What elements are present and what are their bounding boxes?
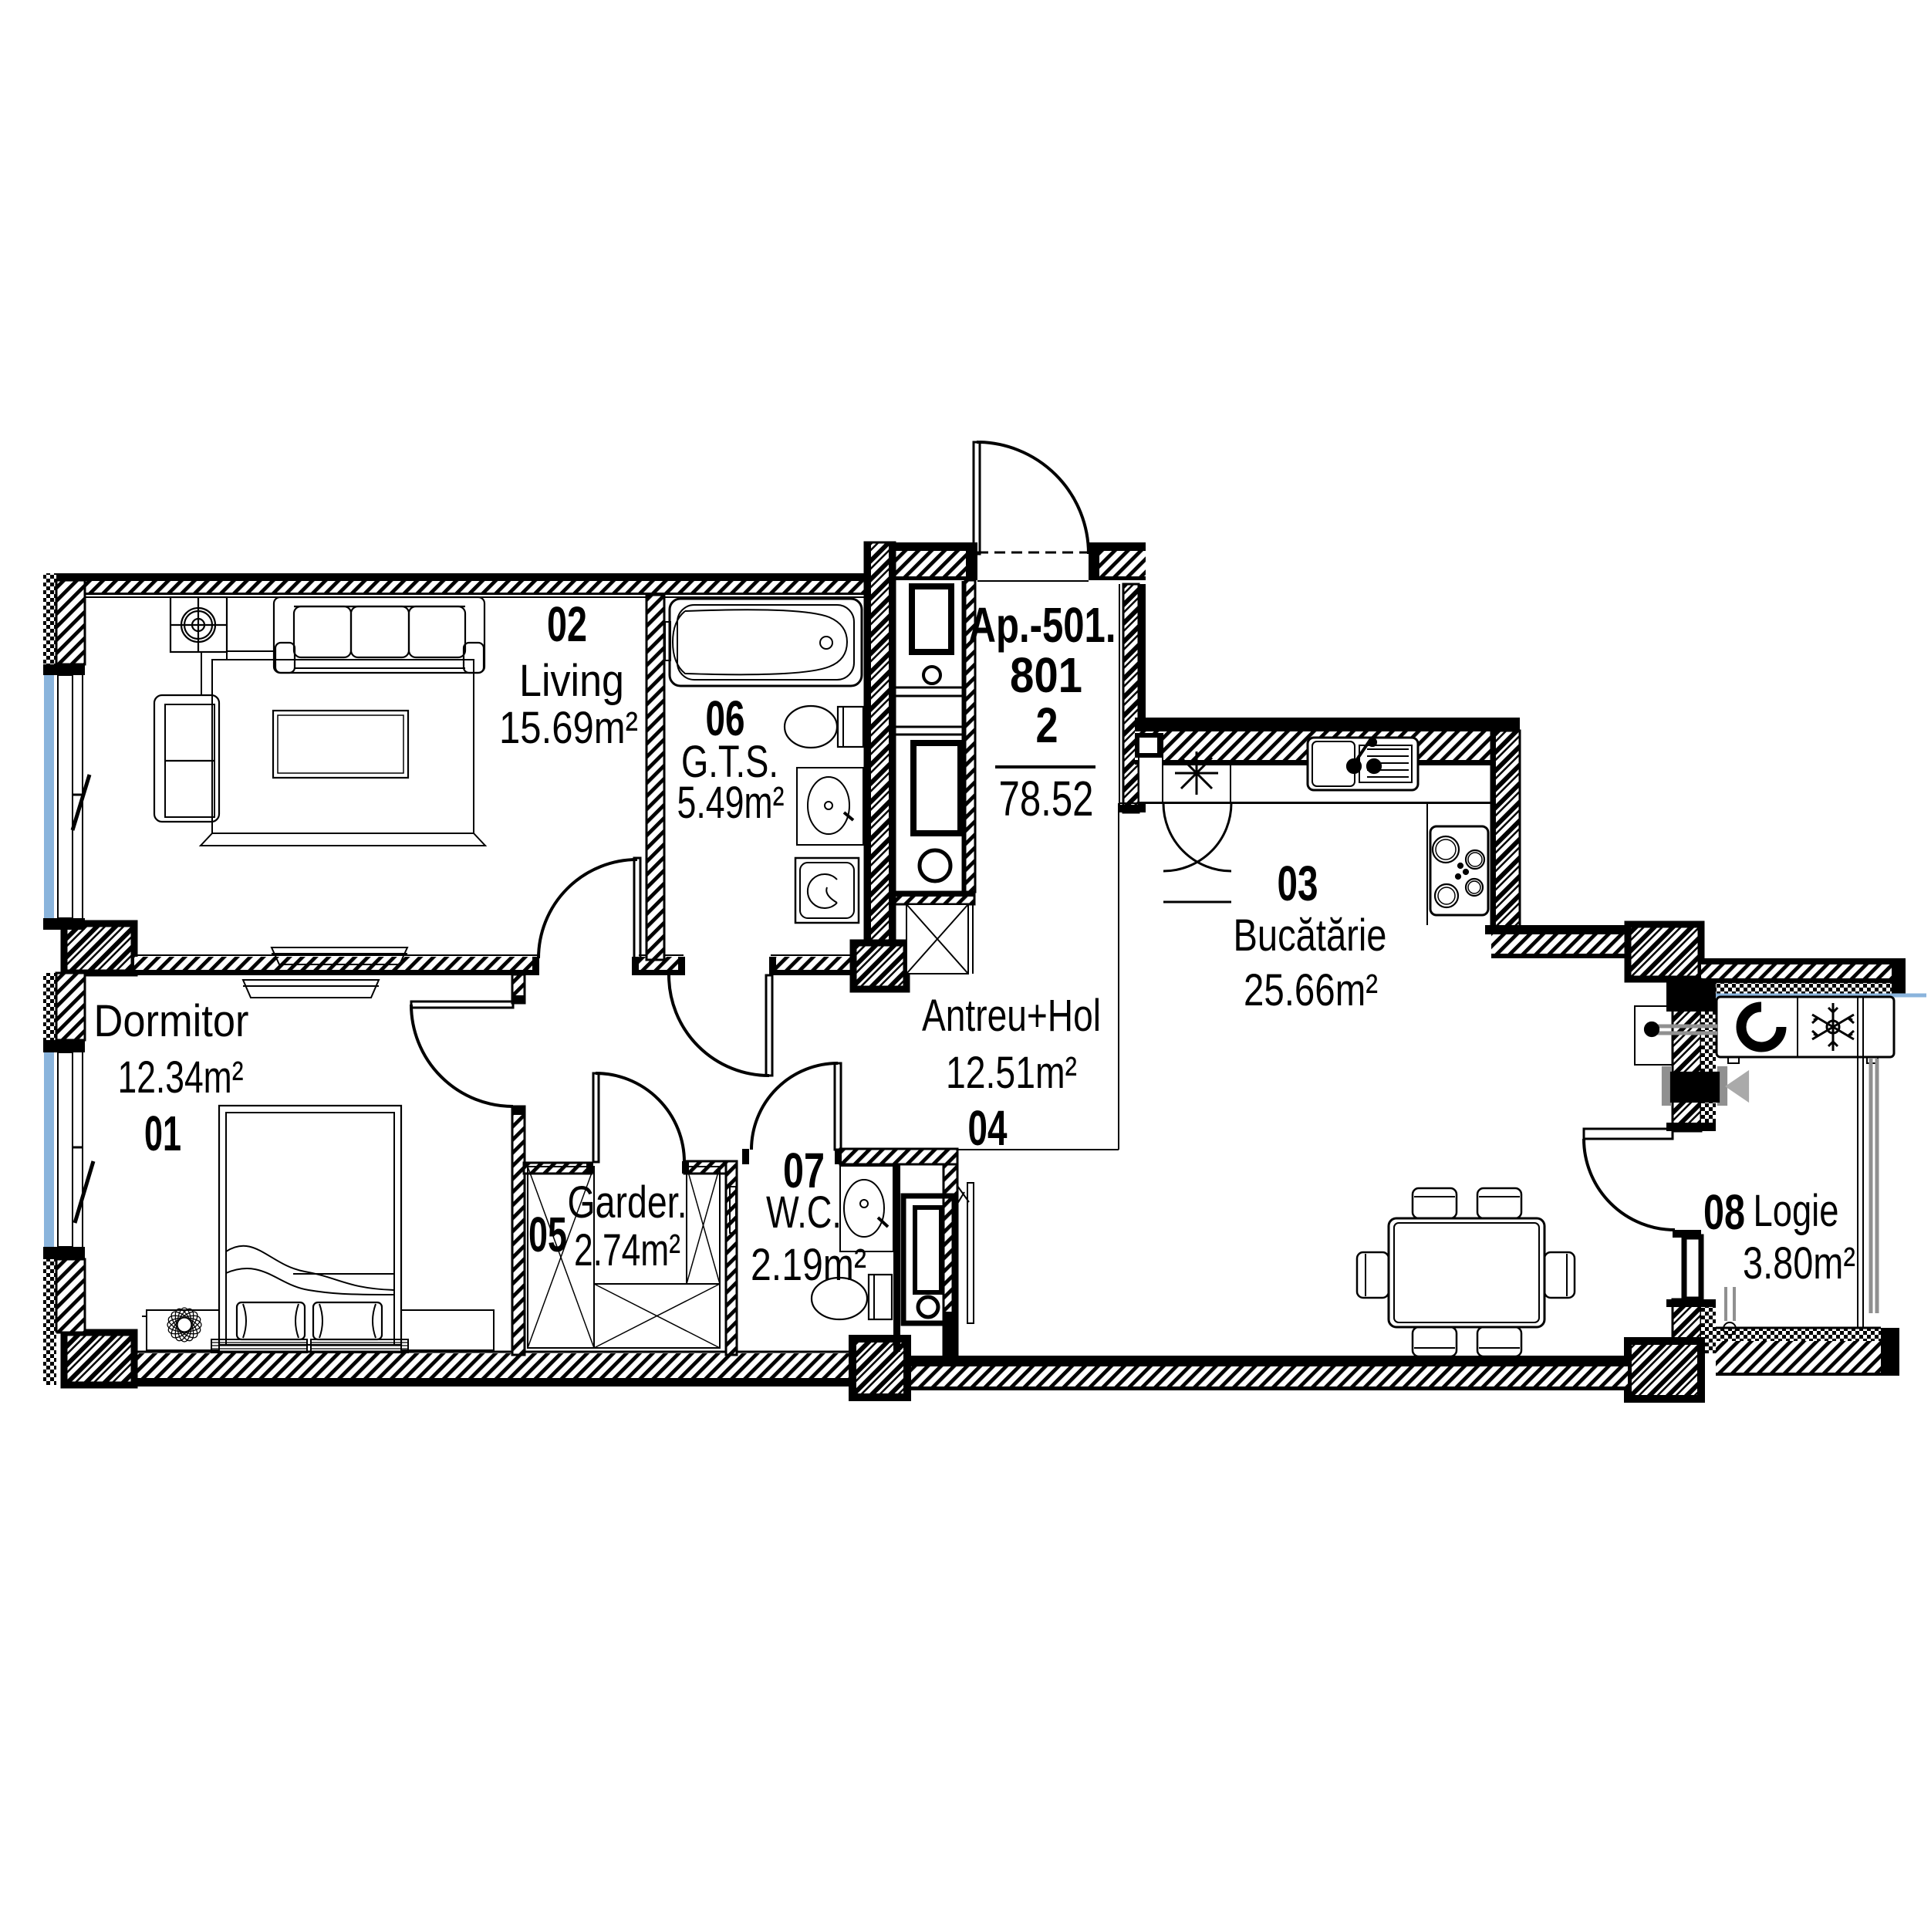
- svg-text:12.51m²: 12.51m²: [946, 1048, 1077, 1098]
- svg-text:01: 01: [144, 1106, 181, 1161]
- svg-text:12.34m²: 12.34m²: [118, 1052, 244, 1103]
- svg-text:Logie: Logie: [1754, 1186, 1839, 1236]
- svg-text:Dormitor: Dormitor: [94, 996, 249, 1046]
- svg-text:78.52: 78.52: [999, 771, 1094, 826]
- svg-text:2.74m²: 2.74m²: [574, 1225, 680, 1275]
- svg-text:02: 02: [547, 596, 587, 652]
- svg-text:03: 03: [1278, 856, 1318, 911]
- svg-text:Bucătărie: Bucătărie: [1234, 910, 1387, 961]
- svg-text:2: 2: [1036, 697, 1058, 753]
- svg-text:W.C.: W.C.: [766, 1187, 842, 1238]
- svg-text:05: 05: [528, 1207, 567, 1262]
- svg-text:Antreu+Hol: Antreu+Hol: [922, 991, 1101, 1041]
- svg-text:2.19m²: 2.19m²: [751, 1240, 866, 1290]
- svg-text:08: 08: [1703, 1184, 1745, 1240]
- svg-text:5.49m²: 5.49m²: [677, 778, 785, 828]
- svg-text:04: 04: [968, 1100, 1008, 1156]
- svg-text:3.80m²: 3.80m²: [1743, 1238, 1855, 1289]
- svg-text:Ap.-501.: Ap.-501.: [969, 597, 1116, 653]
- svg-text:25.66m²: 25.66m²: [1244, 965, 1378, 1015]
- svg-text:801: 801: [1010, 647, 1082, 703]
- svg-text:Garder.: Garder.: [568, 1177, 687, 1228]
- svg-text:15.69m²: 15.69m²: [499, 703, 638, 753]
- svg-text:Living: Living: [519, 656, 624, 706]
